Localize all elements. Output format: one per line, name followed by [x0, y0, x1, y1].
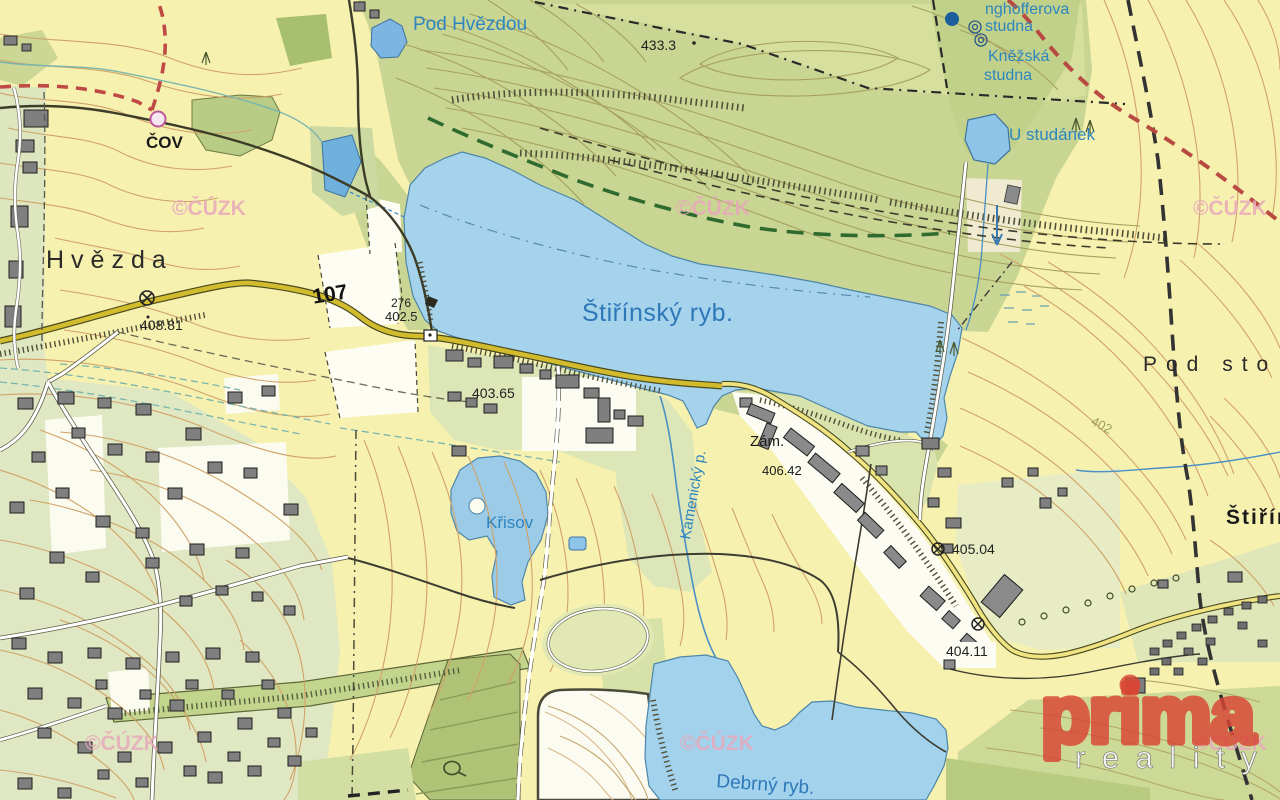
svg-text:reality: reality — [1075, 740, 1273, 775]
svg-text:©ČÚZK: ©ČÚZK — [1193, 196, 1267, 220]
svg-text:studna: studna — [985, 18, 1033, 35]
svg-text:406.42: 406.42 — [762, 463, 802, 478]
svg-text:433.3: 433.3 — [641, 37, 676, 53]
svg-text:Pod sto: Pod sto — [1143, 353, 1277, 376]
svg-text:studna: studna — [984, 67, 1032, 84]
svg-text:402.5: 402.5 — [385, 309, 418, 324]
svg-text:Zám.: Zám. — [750, 433, 784, 450]
svg-text:©ČÚZK: ©ČÚZK — [172, 196, 246, 220]
svg-text:Štiřínský ryb.: Štiřínský ryb. — [582, 298, 733, 327]
svg-text:405.04: 405.04 — [952, 541, 995, 557]
svg-text:276: 276 — [391, 296, 411, 310]
svg-text:408.81: 408.81 — [140, 317, 183, 333]
svg-text:©ČÚZK: ©ČÚZK — [676, 196, 750, 220]
svg-text:nghofferova: nghofferova — [985, 1, 1069, 18]
svg-text:404.11: 404.11 — [946, 643, 988, 659]
svg-text:Hvězda: Hvězda — [46, 246, 173, 274]
svg-text:Kněžská: Kněžská — [988, 48, 1049, 65]
svg-text:Pod Hvězdou: Pod Hvězdou — [413, 14, 527, 35]
svg-text:©ČÚZK: ©ČÚZK — [85, 731, 159, 755]
svg-text:U studánek: U studánek — [1009, 125, 1095, 144]
svg-text:ČOV: ČOV — [146, 133, 184, 152]
svg-text:403.65: 403.65 — [472, 385, 515, 401]
svg-text:Štiřín: Štiřín — [1226, 505, 1280, 529]
svg-text:Křisov: Křisov — [486, 513, 534, 532]
svg-text:©ČÚZK: ©ČÚZK — [680, 731, 754, 755]
